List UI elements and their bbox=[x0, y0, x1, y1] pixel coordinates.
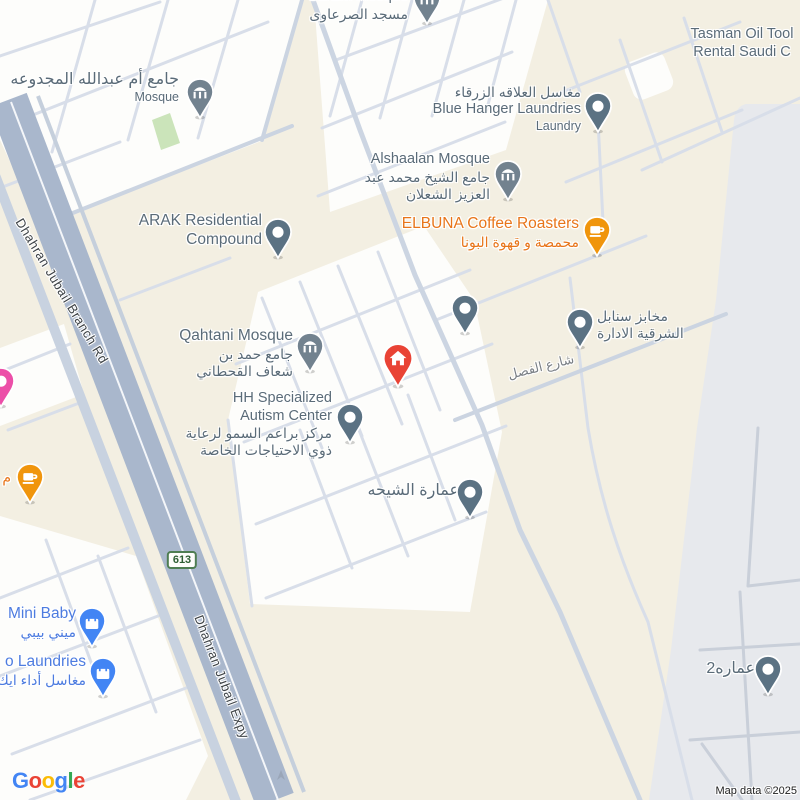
coffee-pin[interactable] bbox=[582, 216, 612, 263]
generic-pin[interactable] bbox=[335, 403, 365, 450]
mosque-pin[interactable] bbox=[295, 332, 325, 379]
poi-label-sarawi-mosque[interactable]: Sarawi Mosqueمسجد الصرعاوى bbox=[308, 0, 408, 23]
google-logo-letter: G bbox=[12, 768, 29, 793]
poi-label-blue-hanger-laundries[interactable]: مغاسل العلاقه الزرقاءBlue Hanger Laundri… bbox=[433, 84, 581, 134]
poi-label-line: Mosque bbox=[10, 90, 179, 105]
poi-label-line: Blue Hanger Laundries bbox=[433, 101, 581, 119]
poi-label-line: مخابز سنابل bbox=[597, 308, 684, 325]
poi-label-line: مركز براعم السمو لرعاية bbox=[186, 425, 332, 442]
poi-label-line: جامع الشيخ محمد عبد bbox=[365, 169, 490, 186]
poi-label-line: ARAK Residential bbox=[139, 212, 262, 231]
google-logo-letter: e bbox=[73, 768, 85, 793]
poi-label-line: Tasman Oil Tool bbox=[672, 26, 800, 44]
poi-label-amara2[interactable]: عماره2 bbox=[706, 659, 755, 679]
poi-label-line: o Laundries bbox=[0, 653, 86, 672]
poi-label-line: جامع حمد بن bbox=[179, 346, 293, 363]
poi-label-line: محمصة و قهوة البونا bbox=[402, 234, 579, 251]
mosque-pin[interactable] bbox=[493, 160, 523, 207]
google-logo[interactable]: Google bbox=[12, 768, 85, 794]
route-shield-613: 613 bbox=[167, 551, 197, 569]
poi-label-line: Qahtani Mosque bbox=[179, 327, 293, 346]
coffee-pin[interactable] bbox=[15, 463, 45, 510]
generic-pin[interactable] bbox=[565, 308, 595, 355]
poi-label-line: ذوي الاحتياجات الخاصة bbox=[186, 442, 332, 459]
map-canvas[interactable]: 613 Dhahran Jubail Branch RdDhahran Juba… bbox=[0, 0, 800, 800]
generic-pin[interactable] bbox=[450, 294, 480, 341]
poi-label-line: Sarawi Mosque bbox=[308, 0, 408, 6]
poi-label-line: HH Specialized bbox=[186, 390, 332, 408]
poi-label-umm-abdullah-mosque[interactable]: جامع أم عبدالله المجدوعهMosque bbox=[10, 70, 179, 105]
poi-label-line: مسجد الصرعاوى bbox=[308, 6, 408, 23]
generic-pin[interactable] bbox=[455, 478, 485, 525]
poi-label-line: مغاسل أداء ايك bbox=[0, 672, 86, 689]
poi-label-line: العزيز الشعلان bbox=[365, 186, 490, 203]
generic-pin[interactable] bbox=[263, 218, 293, 265]
poi-label-amarat-al-shiha[interactable]: عمارة الشيحه bbox=[367, 481, 459, 501]
poi-label-line: شعاف القحطاني bbox=[179, 363, 293, 380]
generic-pin[interactable] bbox=[753, 655, 783, 702]
route-shield-label: 613 bbox=[173, 554, 191, 566]
poi-label-qahtani-mosque[interactable]: Qahtani Mosqueجامع حمد بنشعاف القحطاني bbox=[179, 327, 293, 380]
home-pin[interactable] bbox=[381, 343, 415, 394]
map-background bbox=[0, 0, 800, 800]
poi-label-elbuna-coffee-roasters[interactable]: ELBUNA Coffee Roastersمحمصة و قهوة البون… bbox=[402, 215, 579, 251]
poi-label-line: Alshaalan Mosque bbox=[365, 151, 490, 169]
poi-label-line: ELBUNA Coffee Roasters bbox=[402, 215, 579, 234]
poi-label-line: Autism Center bbox=[186, 408, 332, 426]
poi-label-tasman-oil-tools[interactable]: Tasman Oil ToolRental Saudi C bbox=[672, 26, 800, 61]
google-logo-letter: o bbox=[29, 768, 42, 793]
poi-label-line: ميني بيبي bbox=[8, 624, 76, 641]
poi-label-sanabel-bakeries[interactable]: مخابز سنابلالشرقية الادارة bbox=[597, 308, 684, 342]
poi-label-line: جامع أم عبدالله المجدوعه bbox=[10, 70, 179, 90]
generic-pin[interactable] bbox=[583, 92, 613, 139]
shop-pin[interactable] bbox=[77, 607, 107, 654]
poi-label-line: م bbox=[2, 469, 11, 486]
poi-label-line: Laundry bbox=[433, 119, 581, 134]
google-logo-letter: g bbox=[55, 768, 68, 793]
poi-label-line: عماره2 bbox=[706, 659, 755, 679]
google-logo-letter: o bbox=[42, 768, 55, 793]
shop-pin[interactable] bbox=[88, 657, 118, 704]
pink-pin[interactable] bbox=[0, 367, 16, 414]
poi-label-line: Rental Saudi C bbox=[672, 44, 800, 62]
poi-label-line: Compound bbox=[139, 231, 262, 250]
poi-label-hh-specialized-autism-center[interactable]: HH SpecializedAutism Centerمركز براعم ال… bbox=[186, 390, 332, 460]
poi-label-line: الشرقية الادارة bbox=[597, 325, 684, 342]
poi-label-coffee-left-edge[interactable]: م bbox=[2, 469, 11, 486]
poi-label-line: عمارة الشيحه bbox=[367, 481, 459, 501]
poi-label-line: Mini Baby bbox=[8, 605, 76, 624]
map-attribution: Map data ©2025 bbox=[716, 785, 798, 797]
poi-label-mini-baby[interactable]: Mini Babyميني بيبي bbox=[8, 605, 76, 641]
poi-label-alshaalan-mosque[interactable]: Alshaalan Mosqueجامع الشيخ محمد عبدالعزي… bbox=[365, 151, 490, 203]
poi-label-line: مغاسل العلاقه الزرقاء bbox=[433, 84, 581, 101]
mosque-pin[interactable] bbox=[185, 78, 215, 125]
poi-label-arak-residential-compound[interactable]: ARAK ResidentialCompound bbox=[139, 212, 262, 250]
mosque-pin[interactable] bbox=[412, 0, 442, 31]
poi-label-laundries[interactable]: o Laundriesمغاسل أداء ايك bbox=[0, 653, 86, 689]
